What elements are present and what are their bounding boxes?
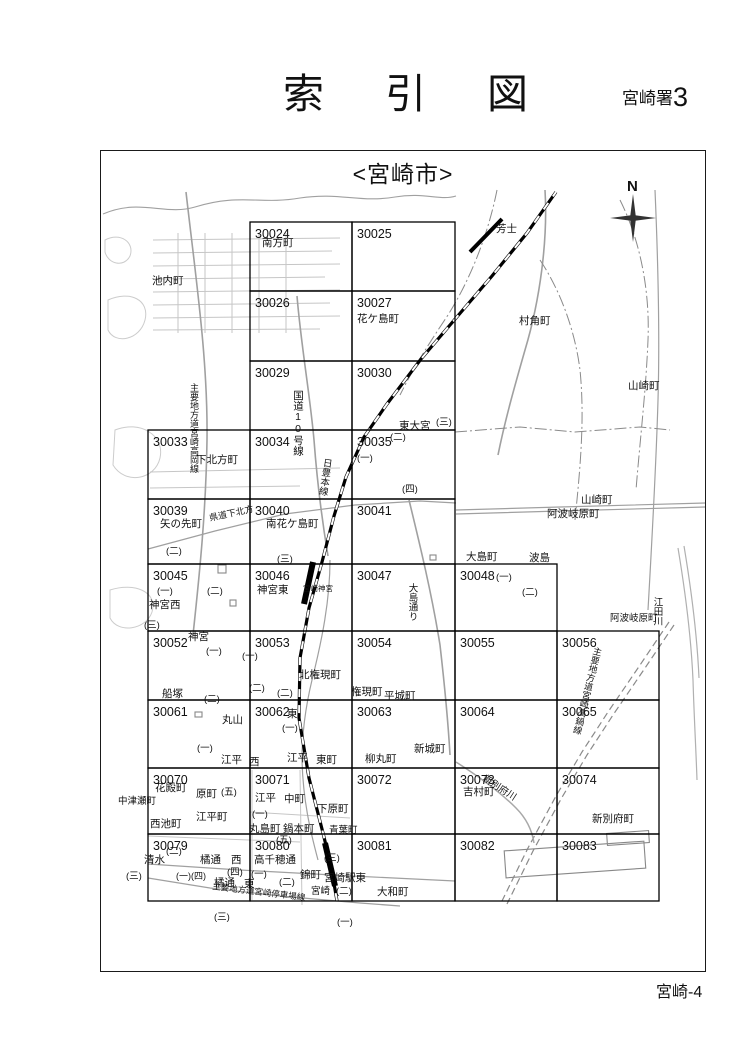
place-label: (一)(四) [176, 871, 206, 881]
place-label: 日豊本線 [316, 457, 333, 496]
grid-cell-number: 30027 [357, 296, 392, 310]
place-label: 阿波岐原町 [547, 507, 600, 520]
grid-cell-number: 30041 [357, 504, 392, 518]
grid-cell-number: 30026 [255, 296, 290, 310]
place-label: 青葉町 [329, 824, 358, 836]
place-label: 江平 [287, 752, 308, 764]
place-label: 平城町 [384, 690, 416, 702]
place-label: (三) [214, 912, 230, 923]
place-label: 宮崎神宮 [303, 583, 333, 593]
place-label: 南方町 [262, 236, 294, 249]
place-label: 花ケ島町 [357, 312, 399, 325]
grid-cell-number: 30061 [153, 705, 188, 719]
page-number: 宮崎-4 [656, 978, 702, 1002]
place-label: (二) [336, 886, 352, 897]
grid-cell-number: 30048 [460, 569, 495, 583]
place-label: 新城町 [414, 742, 446, 755]
place-label: (一) [496, 572, 512, 583]
place-label: 県道下北方 [208, 503, 254, 523]
place-label: 中津瀬町 [118, 795, 157, 807]
place-label: (五) [276, 835, 292, 846]
place-label: (一) [252, 809, 268, 820]
place-label: (三) [277, 554, 293, 565]
place-label: (二) [279, 877, 295, 888]
index-map-page: 索 引 図 宮崎署3 <宮崎市> [0, 0, 750, 1061]
place-label: (三) [436, 417, 452, 428]
place-label: (一) [242, 651, 258, 662]
grid-cell-number: 30035 [357, 435, 392, 449]
compass: N [610, 178, 656, 242]
grid-cell-number: 30083 [562, 839, 597, 853]
river-etagawa-1 [678, 548, 697, 780]
place-label: 吉村町 [463, 785, 495, 798]
place-label: (二) [249, 683, 265, 694]
place-label: 下北方町 [196, 453, 238, 466]
place-label: 神宮東 [257, 583, 289, 596]
place-label: (一) [197, 743, 213, 754]
grid-cell-number: 30055 [460, 636, 495, 650]
grid-cell-number: 30033 [153, 435, 188, 449]
grid-cell-number: 30056 [562, 636, 597, 650]
boundary-lines [400, 190, 670, 520]
place-label: 北権現町 [299, 668, 341, 681]
grid-cell-number: 30047 [357, 569, 392, 583]
grid-cell-number: 30081 [357, 839, 392, 853]
grid-cell-number: 30064 [460, 705, 495, 719]
place-label: 村角町 [519, 314, 551, 327]
grid-cell-number: 30029 [255, 366, 290, 380]
place-label: 新別府町 [592, 812, 634, 825]
place-label: (三) [126, 871, 142, 882]
place-label: 波島 [529, 551, 550, 564]
grid-cell-number: 30071 [255, 773, 290, 787]
place-label: 江平 [221, 754, 242, 766]
place-label: (二) [207, 586, 223, 597]
place-label: 丸山 [222, 713, 243, 726]
place-label: (三) [144, 620, 160, 631]
place-label: (四) [402, 484, 418, 495]
place-label: 東 [287, 707, 298, 720]
place-label: 神宮西 [149, 598, 181, 611]
grid-cell-number: 30052 [153, 636, 188, 650]
place-label: 錦町 [300, 868, 321, 881]
road-takanabe-line-1 [502, 622, 669, 901]
place-label: 東大宮 [399, 419, 431, 432]
place-label: 宮崎駅東 [324, 871, 366, 884]
index-map: 3002430025300263002730029300303003330034… [0, 0, 750, 1061]
place-label: (二) [166, 546, 182, 557]
place-label: (五) [221, 787, 237, 798]
place-label: 東町 [316, 753, 337, 766]
grid-cell-number: 30039 [153, 504, 188, 518]
place-label: 高千穂通 [254, 853, 296, 866]
place-label: (一) [157, 586, 173, 597]
grid-cell-number: 30054 [357, 636, 392, 650]
compass-n-label: N [627, 178, 638, 195]
road-north-south-right [648, 190, 659, 610]
grid-cell-number: 30062 [255, 705, 290, 719]
place-label: 大島町 [466, 550, 498, 563]
grid-cell-number: 30040 [255, 504, 290, 518]
place-label: 橘通 [200, 854, 221, 866]
place-label: 原町 [196, 788, 217, 800]
place-label: 鍋本町 [283, 822, 315, 835]
place-label: 山崎町 [581, 493, 613, 506]
grid-cell-number: 30045 [153, 569, 188, 583]
place-label: 丸島町 [249, 822, 281, 835]
grid-cell-number: 30074 [562, 773, 597, 787]
place-label: 権現町 [351, 685, 383, 698]
place-label: 下原町 [317, 803, 349, 815]
place-label: 山崎町 [628, 379, 660, 392]
place-label: 船塚 [162, 687, 183, 700]
place-label: (三) [324, 853, 340, 864]
place-label: 矢の先町 [160, 517, 202, 530]
place-label: 大和町 [377, 885, 409, 898]
place-label: 国道10号線 [292, 390, 304, 456]
place-label: 西 [231, 854, 242, 866]
place-label: (一) [206, 646, 222, 657]
grid-cell-number: 30025 [357, 227, 392, 241]
place-label: 主要地方道宮崎高鍋線 [571, 645, 603, 736]
grid-cell-number: 30072 [357, 773, 392, 787]
grid-cell-number: 30034 [255, 435, 290, 449]
place-label: 江平 [255, 792, 276, 804]
index-grid: 3002430025300263002730029300303003330034… [148, 222, 659, 901]
grid-cell-number: 30030 [357, 366, 392, 380]
place-label: (二) [277, 688, 293, 699]
place-label: 南花ケ島町 [266, 517, 319, 530]
place-label: 芳士 [496, 222, 517, 235]
place-label: 江田川 [652, 597, 664, 626]
grid-cell-number: 30063 [357, 705, 392, 719]
grid-cell-number: 30046 [255, 569, 290, 583]
place-label: 花殿町 [155, 781, 187, 794]
place-label: 宮崎 [311, 885, 331, 897]
compass-needle-horizontal [610, 215, 656, 221]
place-label: (一) [337, 917, 353, 928]
place-label: 神宮 [188, 630, 209, 643]
road-oshima-dori [409, 500, 450, 755]
coastline-path [103, 195, 456, 214]
place-label: 西池町 [150, 817, 182, 830]
place-label: (二) [204, 694, 220, 705]
grid-cell-number: 30082 [460, 839, 495, 853]
place-label: (二) [166, 846, 182, 857]
place-label: 大島通り [407, 582, 419, 621]
place-label: 中町 [284, 792, 305, 805]
place-label: (一) [251, 869, 267, 880]
place-label: 清水 [144, 853, 165, 866]
place-label: (二) [522, 587, 538, 598]
grid-cell-number: 30053 [255, 636, 290, 650]
place-label: (一) [282, 723, 298, 734]
place-label: (二) [390, 432, 406, 443]
place-label: 柳丸町 [365, 752, 397, 765]
place-label: (一) [357, 453, 373, 464]
place-label: 池内町 [152, 274, 184, 287]
roads-layer [103, 190, 706, 906]
place-label: 西 [249, 756, 260, 768]
place-label: 江平町 [196, 811, 228, 823]
